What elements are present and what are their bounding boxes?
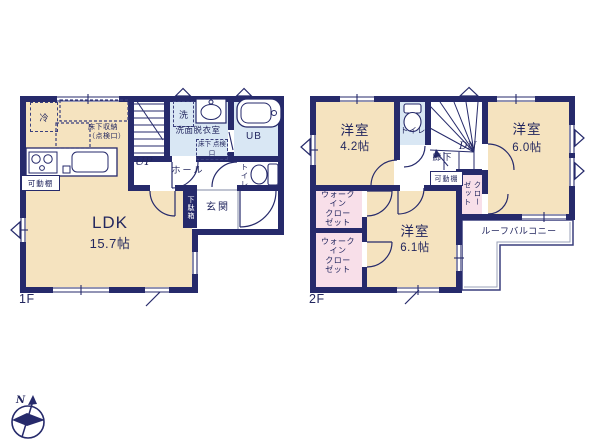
entrance-label: 玄関 bbox=[199, 202, 237, 214]
shoe-cabinet-box: 下駄箱 bbox=[183, 188, 197, 228]
floor2-label: 2F bbox=[309, 292, 325, 307]
walk-in-closet-b-label: ウォーク イン クロー ゼット bbox=[312, 237, 364, 275]
movable-shelf-2f-box: 可動棚 bbox=[430, 171, 463, 186]
washroom-label: 洗面脱衣室 bbox=[165, 125, 231, 135]
room-b-name-label: 洋室 bbox=[496, 122, 558, 138]
f1-stairs-icon bbox=[134, 97, 164, 153]
corridor-label: 廊下 bbox=[422, 152, 464, 162]
stove-icon bbox=[29, 152, 57, 173]
stairs-up-label: UP bbox=[135, 155, 152, 169]
toilet-2f-label: トイレ bbox=[398, 126, 428, 136]
north-label: N bbox=[16, 395, 25, 407]
hall-label: ホール bbox=[166, 165, 210, 176]
washer-box: 洗 bbox=[173, 101, 194, 127]
kitchen-counter-icon bbox=[26, 148, 117, 176]
toilet-icon-1f bbox=[251, 164, 278, 185]
ldk-area-label: 15.7帖 bbox=[68, 236, 152, 252]
room-b-area-label: 6.0帖 bbox=[496, 142, 558, 156]
washbasin-icon bbox=[196, 99, 226, 123]
movable-shelf-1f-box: 可動棚 bbox=[21, 175, 60, 191]
room-a-area-label: 4.2帖 bbox=[318, 141, 392, 155]
floor-storage-label: 床下収納 （点検口） bbox=[88, 123, 136, 141]
closet-label: クローゼット bbox=[462, 179, 482, 209]
bathtub-icon bbox=[237, 99, 281, 127]
roof-balcony-label: ルーフバルコニー bbox=[474, 226, 564, 237]
room-c-area-label: 6.1帖 bbox=[386, 242, 444, 256]
floorplan-image: 冷 床下収納 （点検口） 洗 洗面脱衣室 床下 点検口 UB トイレ UP ホー… bbox=[0, 0, 600, 447]
toilet-1f-label: トイレ bbox=[240, 162, 249, 190]
floor1-label: 1F bbox=[19, 292, 35, 307]
walk-in-closet-a-label: ウォーク イン クロー ゼット bbox=[312, 190, 364, 228]
room-a-name-label: 洋室 bbox=[318, 123, 392, 139]
stairs-down-label: DN bbox=[459, 140, 477, 153]
ldk-name-label: LDK bbox=[68, 213, 152, 233]
floor-hatch-box: 床下 点検口 bbox=[196, 139, 228, 160]
room-c-name-label: 洋室 bbox=[386, 224, 444, 240]
fridge-box: 冷 bbox=[30, 102, 58, 132]
bath-label: UB bbox=[240, 131, 268, 143]
